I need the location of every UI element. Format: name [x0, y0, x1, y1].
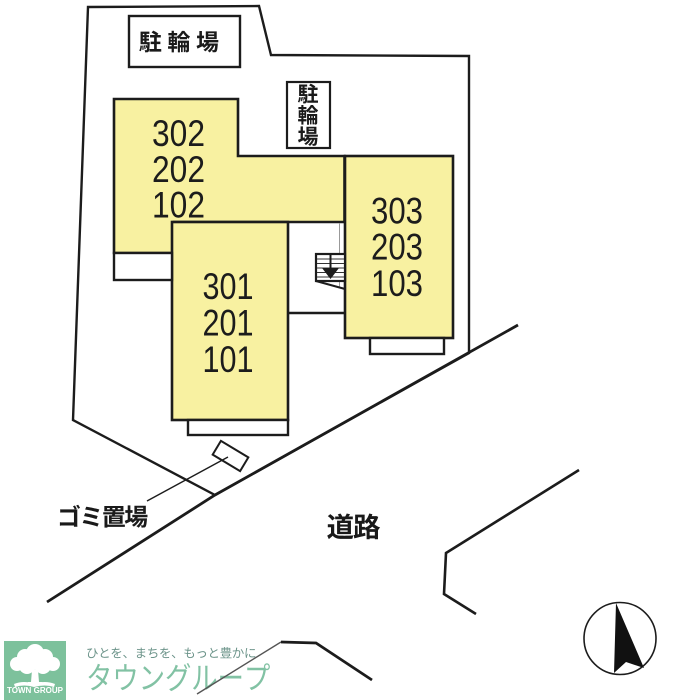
svg-text:101: 101	[203, 339, 254, 380]
svg-text:301: 301	[203, 266, 254, 307]
svg-text:201: 201	[203, 303, 254, 344]
svg-text:102: 102	[152, 185, 205, 226]
svg-text:203: 203	[371, 227, 423, 268]
svg-text:103: 103	[371, 263, 423, 304]
svg-text:TOWN GROUP: TOWN GROUP	[7, 686, 64, 695]
svg-text:303: 303	[371, 191, 423, 232]
